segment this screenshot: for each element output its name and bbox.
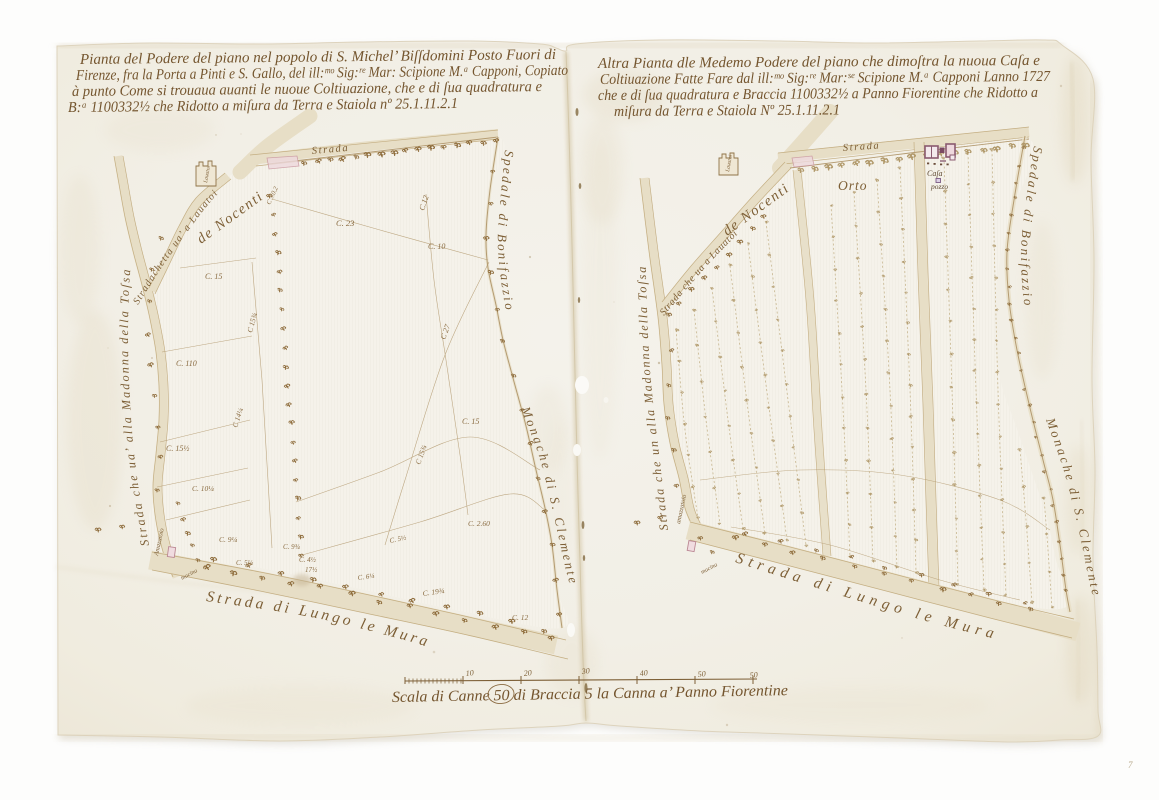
svg-text:C. 15: C. 15 bbox=[205, 272, 222, 281]
svg-text:50: 50 bbox=[749, 670, 758, 680]
svg-text:C. 12: C. 12 bbox=[512, 613, 529, 622]
svg-text:C. 15½: C. 15½ bbox=[166, 444, 189, 453]
svg-text:Caſa: Caſa bbox=[927, 169, 943, 178]
svg-text:17½: 17½ bbox=[305, 566, 318, 574]
svg-text:40: 40 bbox=[639, 668, 648, 678]
svg-text:C. 5¼: C. 5¼ bbox=[236, 559, 254, 567]
svg-text:C. 9¼: C. 9¼ bbox=[219, 535, 238, 544]
svg-text:10: 10 bbox=[465, 668, 474, 678]
svg-text:miſura da Terra e Staiola Nº 2: miſura da Terra e Staiola Nº 25.1.11.2.1 bbox=[614, 102, 840, 120]
svg-text:C. 10: C. 10 bbox=[428, 242, 445, 251]
svg-text:20: 20 bbox=[523, 668, 532, 678]
svg-text:C. 110: C. 110 bbox=[176, 359, 197, 368]
svg-text:C. 23: C. 23 bbox=[336, 218, 354, 228]
svg-text:7: 7 bbox=[1128, 760, 1133, 770]
svg-text:50: 50 bbox=[697, 669, 706, 679]
svg-text:C. 4½: C. 4½ bbox=[299, 556, 317, 564]
svg-text:pozzo: pozzo bbox=[930, 182, 948, 191]
svg-text:C. 10¼: C. 10¼ bbox=[192, 484, 214, 493]
svg-text:C. 9¾: C. 9¾ bbox=[283, 543, 301, 551]
svg-text:30: 30 bbox=[580, 666, 590, 676]
svg-text:C. 15: C. 15 bbox=[462, 417, 479, 426]
svg-text:C. 2.60: C. 2.60 bbox=[468, 519, 490, 528]
svg-text:Orto: Orto bbox=[838, 178, 868, 193]
svg-text:che e di ſua quadratura e Brac: che e di ſua quadratura e Braccia 110033… bbox=[598, 85, 1038, 104]
